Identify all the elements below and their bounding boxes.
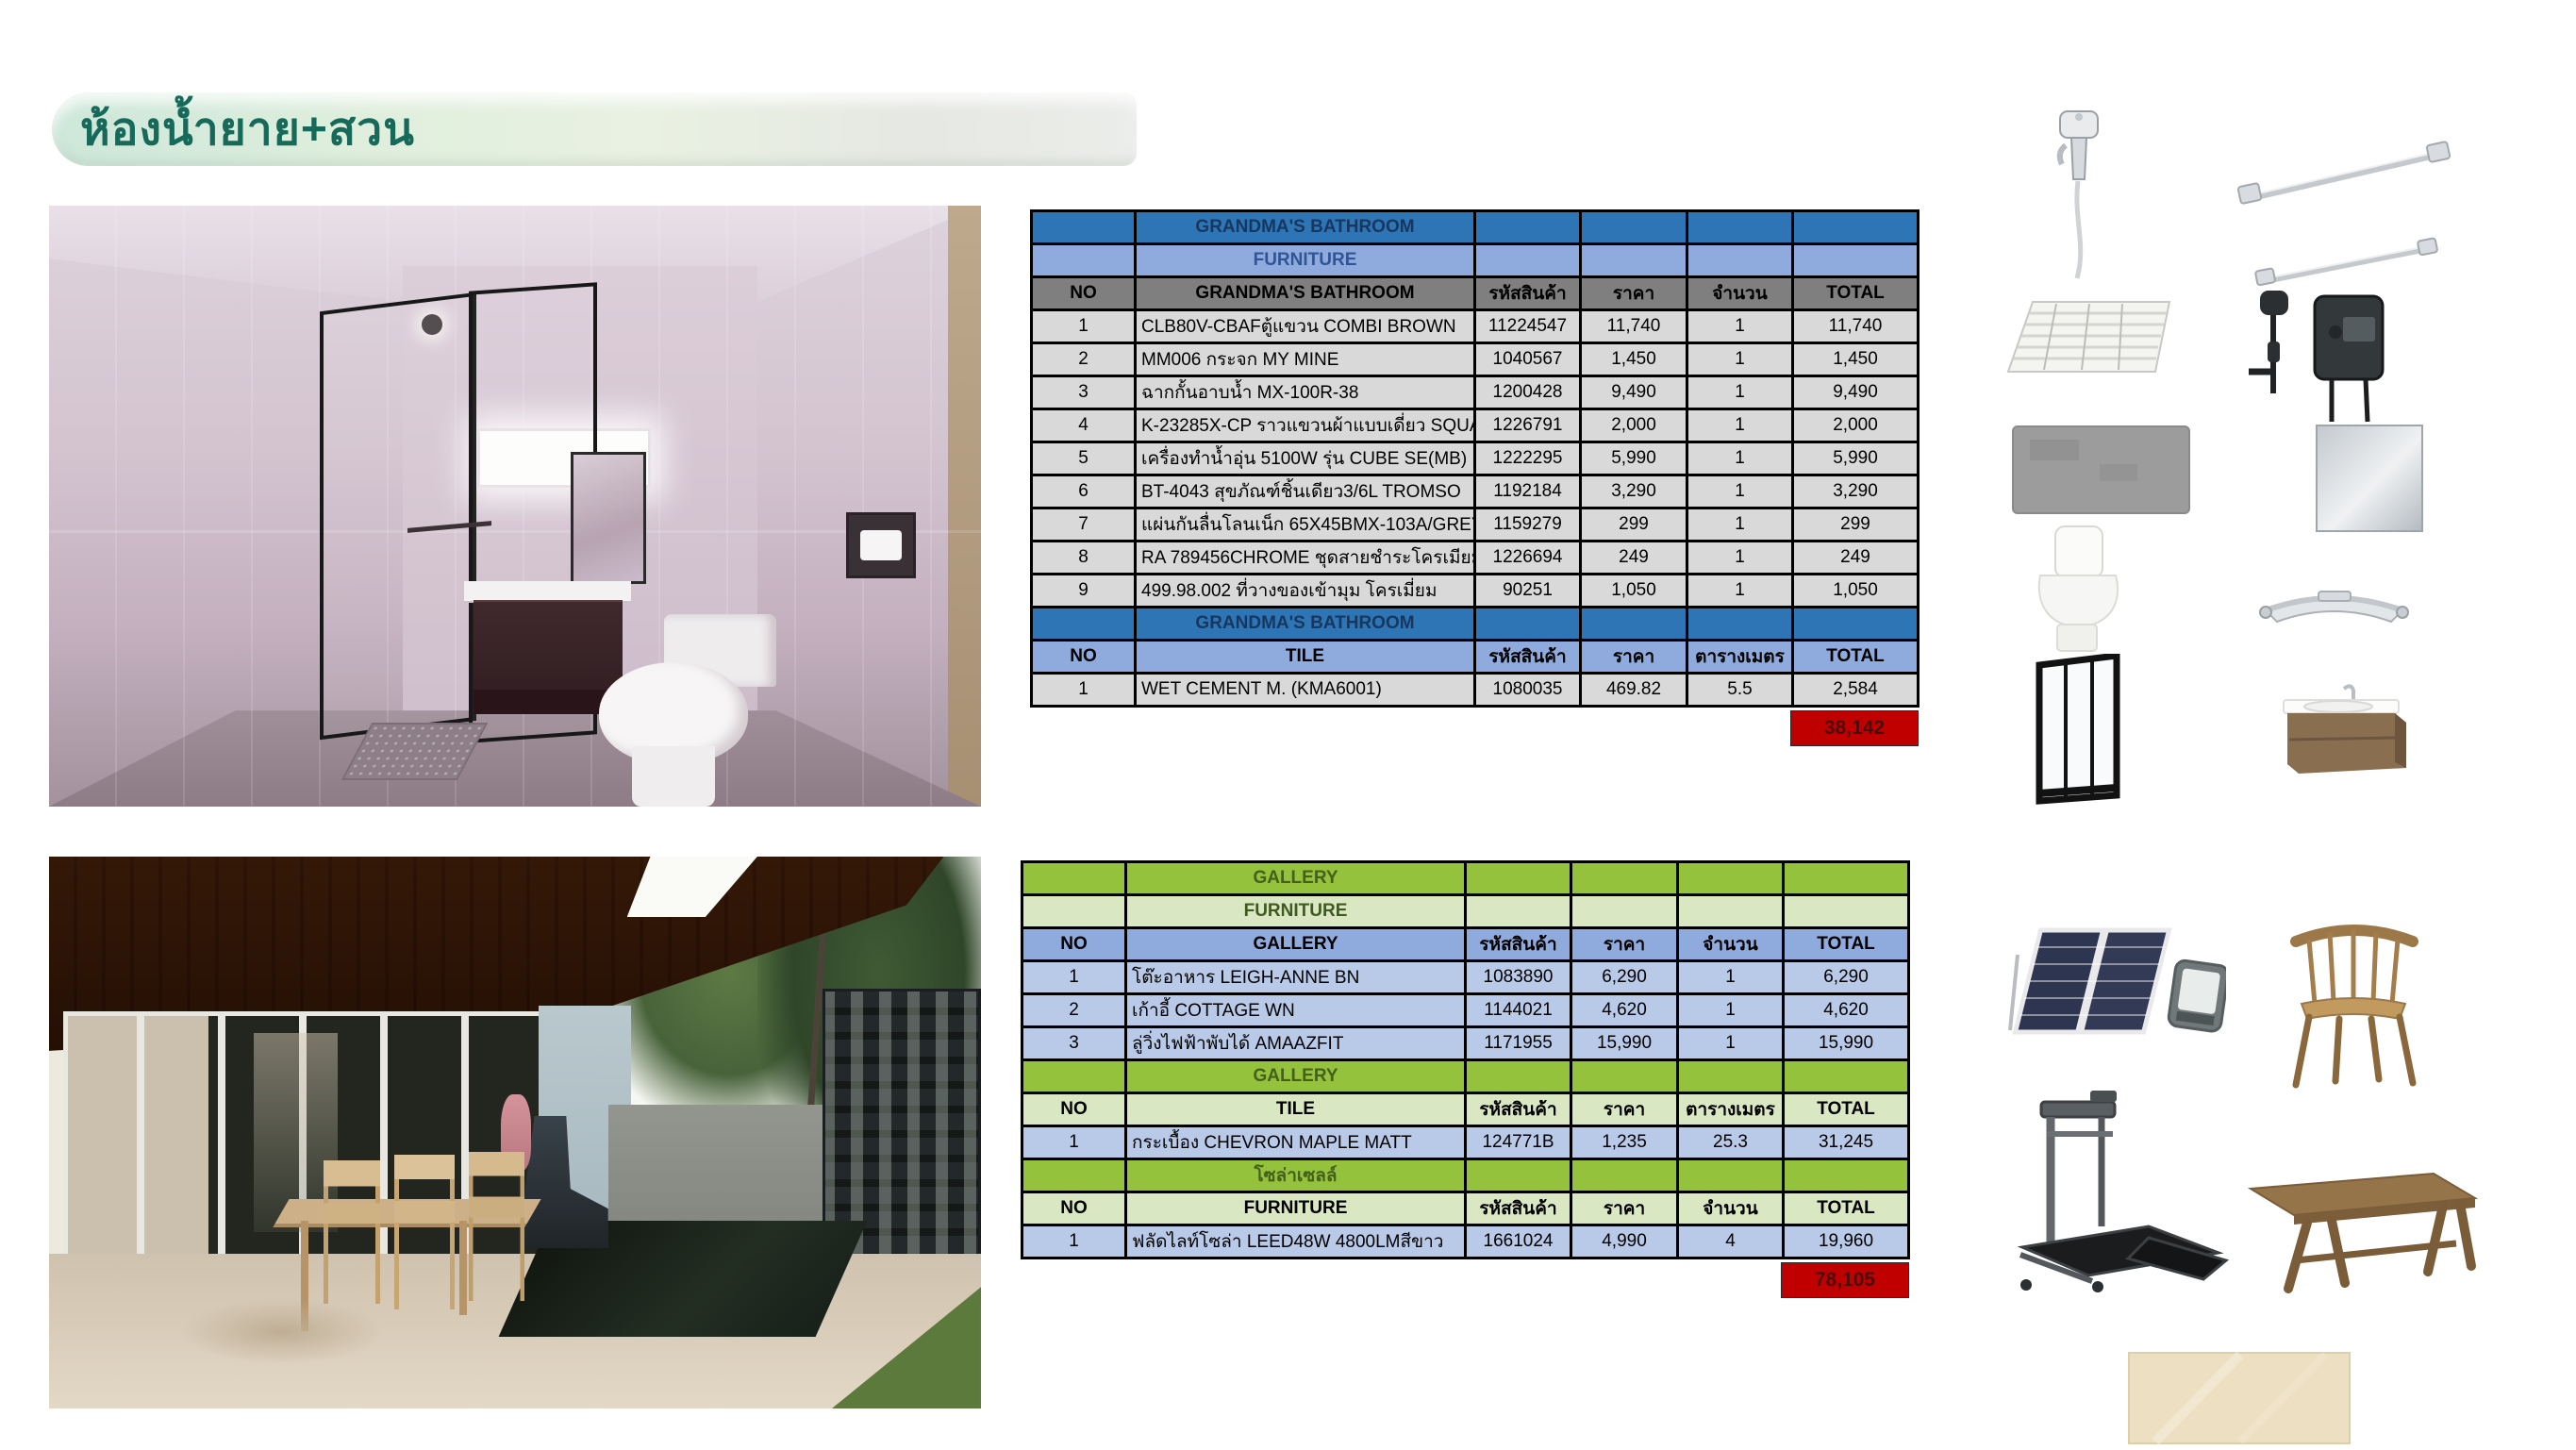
table-row: 3ลู่วิ่งไฟฟ้าพับได้ AMAAZFIT117195515,99…	[1022, 1027, 1909, 1060]
table-cell	[1784, 1060, 1909, 1093]
table-cell	[1571, 895, 1678, 928]
table-cell	[1032, 244, 1136, 277]
table-cell: TILE	[1126, 1093, 1466, 1126]
table-cell: 15,990	[1784, 1027, 1909, 1060]
table-cell: 2,000	[1581, 409, 1687, 442]
grandmas-bathroom-table-wrap: GRANDMA'S BATHROOMFURNITURENOGRANDMA'S B…	[1030, 209, 1920, 708]
table-row: FURNITURE	[1032, 244, 1919, 277]
table-cell	[1793, 244, 1919, 277]
table-cell	[1687, 211, 1793, 244]
table-cell: TOTAL	[1784, 1192, 1909, 1225]
table-cell: 1,050	[1581, 575, 1687, 608]
table-cell: CLB80V-CBAFตู้แขวน COMBI BROWN	[1136, 310, 1475, 343]
table-cell: 7	[1032, 508, 1136, 542]
table-cell	[1678, 1159, 1784, 1192]
table-cell: 1222295	[1475, 442, 1581, 475]
table-cell: 11,740	[1581, 310, 1687, 343]
table-row: 3ฉากกั้นอาบน้ำ MX-100R-3812004289,49019,…	[1032, 376, 1919, 409]
table-cell: 1	[1022, 1225, 1126, 1258]
table-row: 1CLB80V-CBAFตู้แขวน COMBI BROWN112245471…	[1032, 310, 1919, 343]
table-cell: FURNITURE	[1126, 1192, 1466, 1225]
table-cell: 1083890	[1466, 961, 1571, 994]
table-cell: 249	[1581, 542, 1687, 575]
bathroom-grand-total: 38,142	[1790, 710, 1919, 746]
table-row: 2เก้าอี้ COTTAGE WN11440214,62014,620	[1022, 994, 1909, 1027]
table-cell: 5,990	[1581, 442, 1687, 475]
table-cell: 1	[1687, 475, 1793, 508]
table-cell: เก้าอี้ COTTAGE WN	[1126, 994, 1466, 1027]
table-cell: 1	[1687, 343, 1793, 376]
table-cell: 2,584	[1793, 674, 1919, 707]
table-cell: TOTAL	[1793, 277, 1919, 310]
table-row: GRANDMA'S BATHROOM	[1032, 211, 1919, 244]
table-cell	[1687, 244, 1793, 277]
table-cell	[1032, 211, 1136, 244]
table-cell	[1571, 1159, 1678, 1192]
one-piece-toilet-image	[2023, 521, 2136, 658]
table-cell: WET CEMENT M. (KMA6001)	[1136, 674, 1475, 707]
table-cell: 1	[1687, 542, 1793, 575]
table-cell	[1022, 1060, 1126, 1093]
table-cell: ราคา	[1571, 928, 1678, 961]
table-cell	[1784, 862, 1909, 895]
table-row: 9499.98.002 ที่วางของเข้ามุม โครเมี่ยม90…	[1032, 575, 1919, 608]
chair-2	[394, 1155, 455, 1309]
table-row: 6BT-4043 สุขภัณฑ์ชิ้นเดียว3/6L TROMSO119…	[1032, 475, 1919, 508]
table-cell: GALLERY	[1126, 1060, 1466, 1093]
water-heater-image	[2245, 285, 2391, 426]
table-cell	[1581, 608, 1687, 641]
table-row: NOTILEรหัสสินค้าราคาตารางเมตรTOTAL	[1022, 1093, 1909, 1126]
table-cell: เครื่องทำน้ำอุ่น 5100W รุ่น CUBE SE(MB)	[1136, 442, 1475, 475]
floor-shadow	[179, 1298, 384, 1364]
vanity-cabinet-image	[2276, 681, 2418, 780]
table-cell: 499.98.002 ที่วางของเข้ามุม โครเมี่ยม	[1136, 575, 1475, 608]
table-cell: TOTAL	[1784, 1093, 1909, 1126]
table-cell: GRANDMA'S BATHROOM	[1136, 608, 1475, 641]
table-cell	[1687, 608, 1793, 641]
slide-canvas: { "page": { "title": "ห้องน้ำยาย+สวน" },…	[0, 0, 2576, 1449]
table-cell: 124771B	[1466, 1126, 1571, 1159]
drain-mat-image	[2004, 291, 2179, 385]
table-row: FURNITURE	[1022, 895, 1909, 928]
page-title: ห้องน้ำยาย+สวน	[52, 92, 1137, 168]
table-cell	[1475, 211, 1581, 244]
table-cell: 299	[1793, 508, 1919, 542]
table-row: GALLERY	[1022, 1060, 1909, 1093]
table-cell: NO	[1032, 641, 1136, 674]
table-cell: TOTAL	[1784, 928, 1909, 961]
table-cell: 4	[1678, 1225, 1784, 1258]
grandmas-bathroom-render	[49, 206, 981, 807]
table-cell: 9,490	[1581, 376, 1687, 409]
table-cell: จำนวน	[1678, 1192, 1784, 1225]
table-cell: FURNITURE	[1136, 244, 1475, 277]
table-cell	[1022, 862, 1126, 895]
table-cell: 469.82	[1581, 674, 1687, 707]
table-cell: 1	[1022, 961, 1126, 994]
table-cell	[1678, 895, 1784, 928]
table-row: 7แผ่นกันลื่นโลนเน็ก 65X45BMX-103A/GREY11…	[1032, 508, 1919, 542]
table-cell	[1466, 895, 1571, 928]
table-cell: แผ่นกันลื่นโลนเน็ก 65X45BMX-103A/GREY	[1136, 508, 1475, 542]
table-cell: รหัสสินค้า	[1475, 641, 1581, 674]
table-cell: NO	[1032, 277, 1136, 310]
table-cell	[1581, 211, 1687, 244]
table-cell: TOTAL	[1793, 641, 1919, 674]
table-cell: 1	[1687, 508, 1793, 542]
table-row: NOTILEรหัสสินค้าราคาตารางเมตรTOTAL	[1032, 641, 1919, 674]
table-cell: 1040567	[1475, 343, 1581, 376]
table-cell: 1159279	[1475, 508, 1581, 542]
table-cell: 1	[1678, 1027, 1784, 1060]
table-cell	[1466, 862, 1571, 895]
table-cell: 4	[1032, 409, 1136, 442]
table-cell: 249	[1793, 542, 1919, 575]
vanity-cabinet	[474, 600, 623, 714]
table-cell: 1171955	[1466, 1027, 1571, 1060]
gallery-grand-total: 78,105	[1781, 1262, 1909, 1298]
table-row: 1กระเบื้อง CHEVRON MAPLE MATT124771B1,23…	[1022, 1126, 1909, 1159]
table-cell: ราคา	[1571, 1192, 1678, 1225]
solar-panel-floodlight-image	[2004, 917, 2226, 1049]
table-cell	[1466, 1060, 1571, 1093]
table-row: NOFURNITUREรหัสสินค้าราคาจำนวนTOTAL	[1022, 1192, 1909, 1225]
table-cell: 1226791	[1475, 409, 1581, 442]
table-cell: 2	[1032, 343, 1136, 376]
table-cell: 299	[1581, 508, 1687, 542]
table-cell: 1144021	[1466, 994, 1571, 1027]
table-cell: 4,990	[1571, 1225, 1678, 1258]
table-row: 4K-23285X-CP ราวแขวนผ้าแบบเดี่ยว SQUARE1…	[1032, 409, 1919, 442]
dining-table-leg-2	[459, 1221, 467, 1314]
table-cell: NO	[1022, 928, 1126, 961]
table-row: 1ฟลัดไลท์โซล่า LEED48W 4800LMสีขาว166102…	[1022, 1225, 1909, 1258]
table-cell: 1,450	[1793, 343, 1919, 376]
table-cell	[1784, 1159, 1909, 1192]
table-cell: 1	[1032, 674, 1136, 707]
table-cell: 1,450	[1581, 343, 1687, 376]
table-cell: 1	[1687, 376, 1793, 409]
table-cell	[1793, 211, 1919, 244]
table-cell: ราคา	[1581, 641, 1687, 674]
table-cell: รหัสสินค้า	[1466, 928, 1571, 961]
table-cell: RA 789456CHROME ชุดสายชำระโครเมียม	[1136, 542, 1475, 575]
wooden-table-image	[2234, 1140, 2488, 1300]
table-cell: 2	[1022, 994, 1126, 1027]
table-cell: GALLERY	[1126, 862, 1466, 895]
table-cell	[1571, 1060, 1678, 1093]
table-cell: 4,620	[1571, 994, 1678, 1027]
table-cell	[1678, 862, 1784, 895]
table-cell: FURNITURE	[1126, 895, 1466, 928]
table-cell: ฉากกั้นอาบน้ำ MX-100R-38	[1136, 376, 1475, 409]
table-cell: 25.3	[1678, 1126, 1784, 1159]
table-cell: 11224547	[1475, 310, 1581, 343]
folding-treadmill-image	[2007, 1085, 2234, 1307]
wooden-chair-image	[2281, 913, 2427, 1092]
table-cell: โต๊ะอาหาร LEIGH-ANNE BN	[1126, 961, 1466, 994]
table-cell: NO	[1022, 1192, 1126, 1225]
table-cell	[1678, 1060, 1784, 1093]
table-cell: 4,620	[1784, 994, 1909, 1027]
table-cell: 5,990	[1793, 442, 1919, 475]
grandmas-bathroom-table: GRANDMA'S BATHROOMFURNITURENOGRANDMA'S B…	[1030, 209, 1920, 708]
table-cell: จำนวน	[1687, 277, 1793, 310]
table-cell: 3	[1022, 1027, 1126, 1060]
table-row: 1WET CEMENT M. (KMA6001)1080035469.825.5…	[1032, 674, 1919, 707]
table-cell: 1	[1687, 409, 1793, 442]
table-cell: 9	[1032, 575, 1136, 608]
bidet-spray-image	[2019, 104, 2141, 283]
table-row: 2MM006 กระจก MY MINE10405671,45011,450	[1032, 343, 1919, 376]
gray-bath-mat-image	[2009, 423, 2193, 517]
table-row: 1โต๊ะอาหาร LEIGH-ANNE BN10838906,29016,2…	[1022, 961, 1909, 994]
table-cell	[1022, 895, 1126, 928]
table-cell: BT-4043 สุขภัณฑ์ชิ้นเดียว3/6L TROMSO	[1136, 475, 1475, 508]
chair-3	[469, 1152, 524, 1301]
table-cell: GRANDMA'S BATHROOM	[1136, 211, 1475, 244]
shower-partition-image	[2030, 654, 2124, 805]
table-cell: 8	[1032, 542, 1136, 575]
mirror-image	[2314, 423, 2425, 534]
table-row: โซล่าเซลล์	[1022, 1159, 1909, 1192]
table-cell: ลู่วิ่งไฟฟ้าพับได้ AMAAZFIT	[1126, 1027, 1466, 1060]
table-row: GRANDMA'S BATHROOM	[1032, 608, 1919, 641]
table-cell: ฟลัดไลท์โซล่า LEED48W 4800LMสีขาว	[1126, 1225, 1466, 1258]
table-cell: 1	[1678, 994, 1784, 1027]
table-cell: 11,740	[1793, 310, 1919, 343]
table-cell	[1793, 608, 1919, 641]
table-cell: 1226694	[1475, 542, 1581, 575]
gallery-garden-render	[49, 857, 981, 1408]
table-cell: ราคา	[1581, 277, 1687, 310]
gallery-table-wrap: GALLERYFURNITURENOGALLERYรหัสสินค้าราคาจ…	[1021, 860, 1910, 1259]
table-cell: MM006 กระจก MY MINE	[1136, 343, 1475, 376]
table-cell: ตารางเมตร	[1687, 641, 1793, 674]
table-cell: 9,490	[1793, 376, 1919, 409]
table-cell: 1661024	[1466, 1225, 1571, 1258]
table-cell: GRANDMA'S BATHROOM	[1136, 277, 1475, 310]
table-cell: NO	[1022, 1093, 1126, 1126]
table-cell	[1466, 1159, 1571, 1192]
table-cell: 1	[1687, 575, 1793, 608]
table-cell	[1022, 1159, 1126, 1192]
table-cell: 1	[1678, 961, 1784, 994]
table-cell: 1	[1687, 442, 1793, 475]
table-cell	[1571, 862, 1678, 895]
chair-1	[324, 1160, 379, 1304]
table-cell: จำนวน	[1678, 928, 1784, 961]
table-cell: 6,290	[1571, 961, 1678, 994]
table-row: GALLERY	[1022, 862, 1909, 895]
table-cell: 1	[1032, 310, 1136, 343]
table-cell: 1	[1022, 1126, 1126, 1159]
table-cell: ตารางเมตร	[1678, 1093, 1784, 1126]
table-cell	[1475, 244, 1581, 277]
table-cell: 1	[1687, 310, 1793, 343]
shower-glass-frame-1	[320, 292, 476, 740]
table-cell	[1032, 608, 1136, 641]
table-cell: รหัสสินค้า	[1466, 1192, 1571, 1225]
corner-shelf-image	[2256, 580, 2412, 637]
table-row: NOGALLERYรหัสสินค้าราคาจำนวนTOTAL	[1022, 928, 1909, 961]
table-cell: 2,000	[1793, 409, 1919, 442]
table-cell: 1080035	[1475, 674, 1581, 707]
title-banner: ห้องน้ำยาย+สวน	[52, 92, 1137, 166]
table-cell	[1784, 895, 1909, 928]
beige-tile-image	[2127, 1351, 2352, 1445]
table-cell: 5	[1032, 442, 1136, 475]
table-cell: 1,235	[1571, 1126, 1678, 1159]
table-cell: 6	[1032, 475, 1136, 508]
toilet-paper-roll	[860, 530, 902, 560]
table-row: NOGRANDMA'S BATHROOMรหัสสินค้าราคาจำนวนT…	[1032, 277, 1919, 310]
table-cell: 5.5	[1687, 674, 1793, 707]
mirror	[571, 452, 646, 584]
table-row: 5เครื่องทำน้ำอุ่น 5100W รุ่น CUBE SE(MB)…	[1032, 442, 1919, 475]
table-cell: TILE	[1136, 641, 1475, 674]
table-cell: 90251	[1475, 575, 1581, 608]
table-cell: รหัสสินค้า	[1475, 277, 1581, 310]
gallery-table: GALLERYFURNITURENOGALLERYรหัสสินค้าราคาจ…	[1021, 860, 1910, 1259]
toilet-base	[632, 746, 716, 807]
table-cell: 3,290	[1581, 475, 1687, 508]
table-cell: 19,960	[1784, 1225, 1909, 1258]
table-cell: 15,990	[1571, 1027, 1678, 1060]
table-cell: โซล่าเซลล์	[1126, 1159, 1466, 1192]
towel-bar-long-image	[2235, 140, 2452, 215]
table-cell: 3,290	[1793, 475, 1919, 508]
table-cell: 31,245	[1784, 1126, 1909, 1159]
table-cell: รหัสสินค้า	[1466, 1093, 1571, 1126]
table-cell: 3	[1032, 376, 1136, 409]
table-cell: K-23285X-CP ราวแขวนผ้าแบบเดี่ยว SQUARE	[1136, 409, 1475, 442]
table-cell: กระเบื้อง CHEVRON MAPLE MATT	[1126, 1126, 1466, 1159]
table-row: 8RA 789456CHROME ชุดสายชำระโครเมียม12266…	[1032, 542, 1919, 575]
table-cell: GALLERY	[1126, 928, 1466, 961]
table-cell	[1581, 244, 1687, 277]
table-cell: 1192184	[1475, 475, 1581, 508]
table-cell: ราคา	[1571, 1093, 1678, 1126]
table-cell	[1475, 608, 1581, 641]
table-cell: 6,290	[1784, 961, 1909, 994]
table-cell: 1200428	[1475, 376, 1581, 409]
table-cell: 1,050	[1793, 575, 1919, 608]
